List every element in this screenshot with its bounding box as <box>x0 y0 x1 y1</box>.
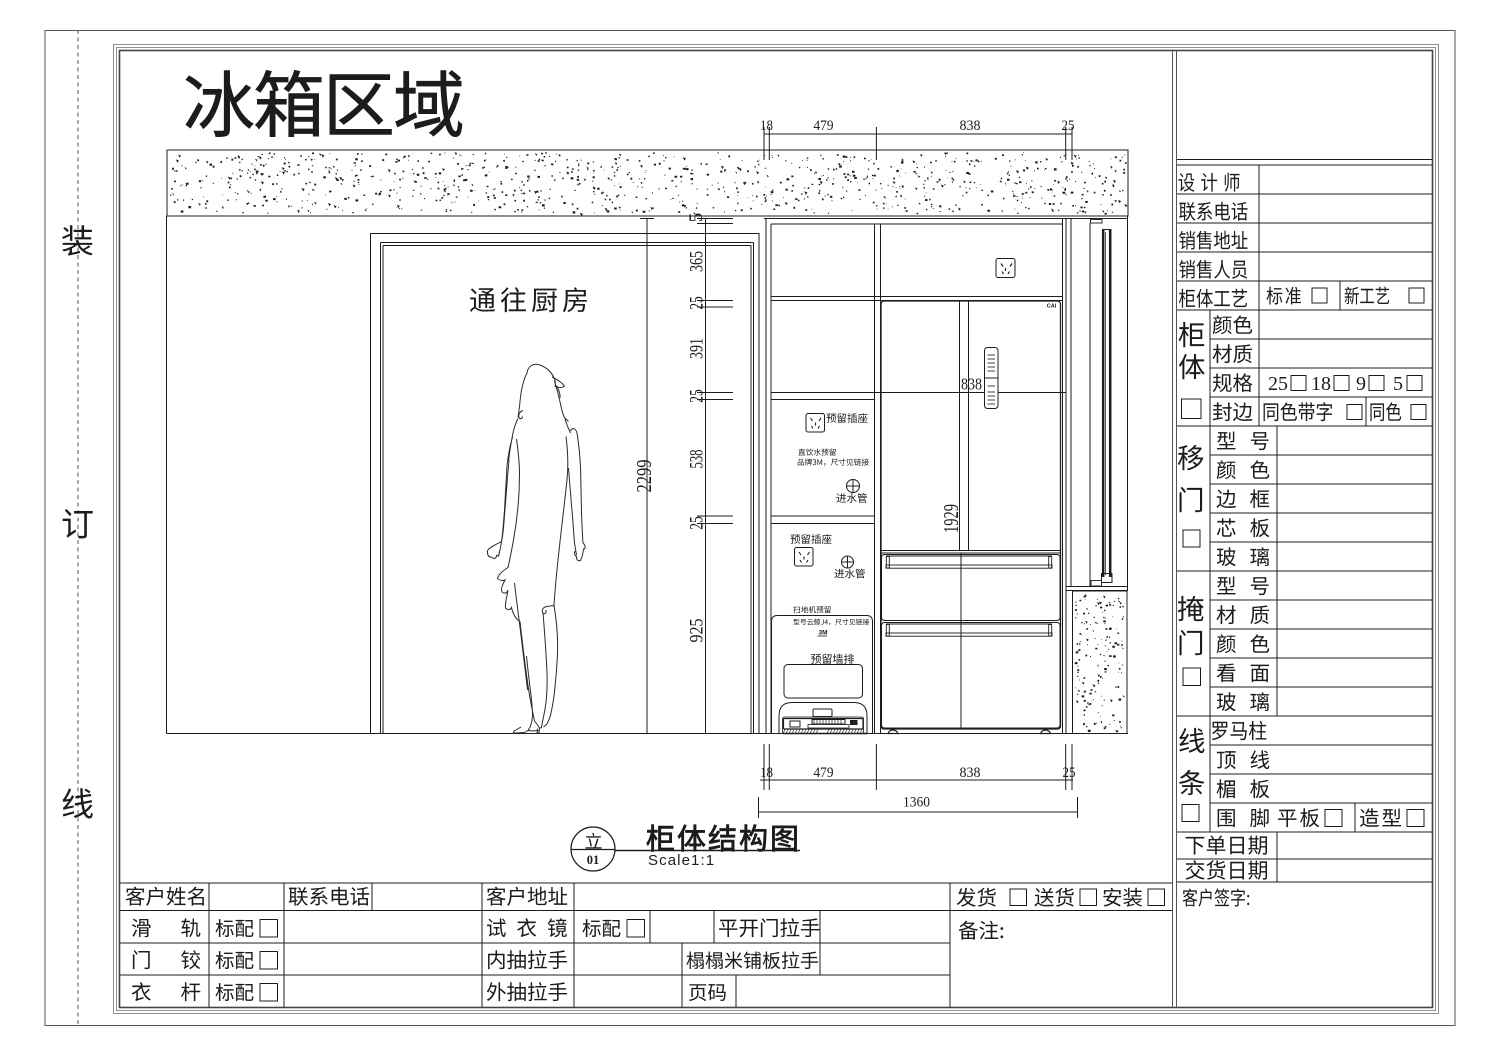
svg-text:25: 25 <box>1063 765 1076 781</box>
svg-text:838: 838 <box>961 375 982 394</box>
svg-text:18: 18 <box>760 118 773 134</box>
svg-text:01: 01 <box>587 853 600 867</box>
svg-text:2299: 2299 <box>632 460 656 493</box>
svg-text:3M: 3M <box>819 630 828 637</box>
svg-text:25: 25 <box>687 516 708 530</box>
svg-text:838: 838 <box>960 118 981 134</box>
svg-text:CAI: CAI <box>1047 304 1057 310</box>
svg-text:9: 9 <box>1356 373 1366 395</box>
svg-text:1929: 1929 <box>939 504 963 533</box>
svg-text:25: 25 <box>687 389 708 403</box>
svg-text:479: 479 <box>814 118 834 134</box>
svg-text:479: 479 <box>814 765 834 781</box>
svg-text:925: 925 <box>687 619 708 643</box>
svg-text:538: 538 <box>687 450 708 469</box>
svg-text:5: 5 <box>686 213 707 223</box>
svg-text:25: 25 <box>687 296 708 310</box>
svg-text:838: 838 <box>960 765 981 781</box>
svg-text:18: 18 <box>760 765 773 781</box>
svg-text:5: 5 <box>1393 373 1403 395</box>
svg-text:18: 18 <box>1311 373 1331 395</box>
svg-text:25: 25 <box>1062 118 1075 134</box>
svg-text:1360: 1360 <box>903 795 930 811</box>
svg-text:25: 25 <box>1268 373 1288 395</box>
svg-text:365: 365 <box>687 251 708 272</box>
svg-text:391: 391 <box>687 338 708 359</box>
svg-text:Scale1:1: Scale1:1 <box>648 852 715 869</box>
